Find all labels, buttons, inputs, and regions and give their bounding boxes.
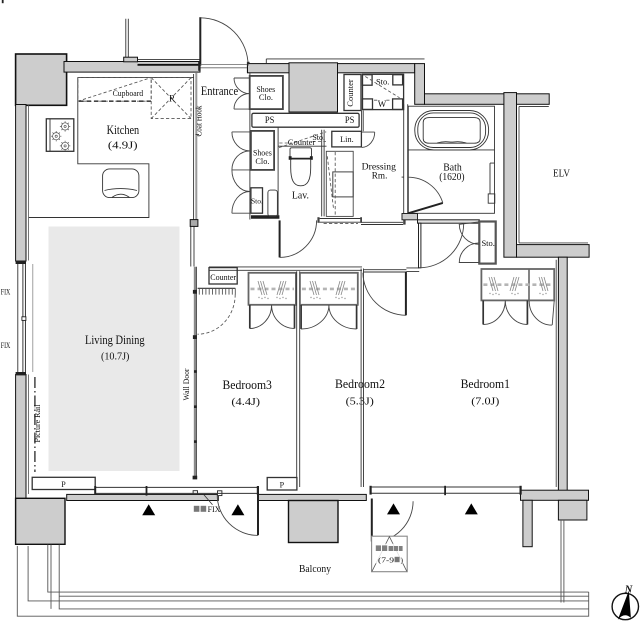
svg-text:Bedroom2: Bedroom2 bbox=[335, 377, 385, 391]
svg-text:Living Dining: Living Dining bbox=[85, 333, 145, 347]
svg-text:Clo.: Clo. bbox=[259, 93, 273, 102]
svg-text:FIX: FIX bbox=[1, 287, 11, 296]
svg-text:Sto.: Sto. bbox=[251, 197, 263, 206]
svg-text:(4.9J): (4.9J) bbox=[108, 140, 138, 151]
svg-text:FIX: FIX bbox=[1, 341, 11, 350]
svg-text:Balcony: Balcony bbox=[299, 564, 331, 575]
svg-text:PS: PS bbox=[265, 116, 275, 126]
svg-text:Lin.: Lin. bbox=[340, 134, 354, 144]
svg-text:P: P bbox=[280, 480, 285, 489]
svg-text:Cupboard: Cupboard bbox=[113, 88, 144, 98]
svg-text:W: W bbox=[378, 99, 387, 109]
svg-text:Lav.: Lav. bbox=[292, 189, 309, 201]
svg-text:Picture Rail: Picture Rail bbox=[33, 404, 42, 443]
svg-text:N: N bbox=[624, 585, 633, 596]
svg-text:Clo.: Clo. bbox=[255, 157, 269, 166]
svg-text:Kitchen: Kitchen bbox=[107, 123, 140, 137]
svg-text:Wall Door: Wall Door bbox=[182, 368, 191, 400]
svg-text:Rm.: Rm. bbox=[372, 172, 388, 182]
svg-text:Sto.: Sto. bbox=[376, 77, 389, 87]
svg-text:Bedroom3: Bedroom3 bbox=[223, 378, 272, 392]
svg-text:Entrance: Entrance bbox=[201, 83, 238, 98]
svg-text:R: R bbox=[169, 93, 175, 103]
svg-text:Counter: Counter bbox=[345, 79, 355, 107]
svg-text:Sto.: Sto. bbox=[312, 133, 325, 142]
svg-text:P: P bbox=[61, 480, 66, 489]
svg-text:ELV: ELV bbox=[553, 168, 570, 179]
svg-text:Counter: Counter bbox=[210, 273, 236, 282]
svg-text:PS: PS bbox=[345, 116, 355, 126]
svg-text:Counter: Counter bbox=[288, 137, 316, 147]
svg-text:(1620): (1620) bbox=[439, 172, 464, 183]
svg-text:(7.0J): (7.0J) bbox=[471, 397, 500, 408]
svg-text:(4.4J): (4.4J) bbox=[231, 397, 260, 408]
svg-text:(7-9: (7-9 bbox=[378, 557, 395, 565]
svg-text:(10.7J): (10.7J) bbox=[101, 352, 130, 363]
svg-text:(5.3J): (5.3J) bbox=[346, 397, 375, 408]
svg-text:Sto.: Sto. bbox=[481, 238, 494, 248]
svg-text:Bedroom1: Bedroom1 bbox=[461, 377, 510, 391]
